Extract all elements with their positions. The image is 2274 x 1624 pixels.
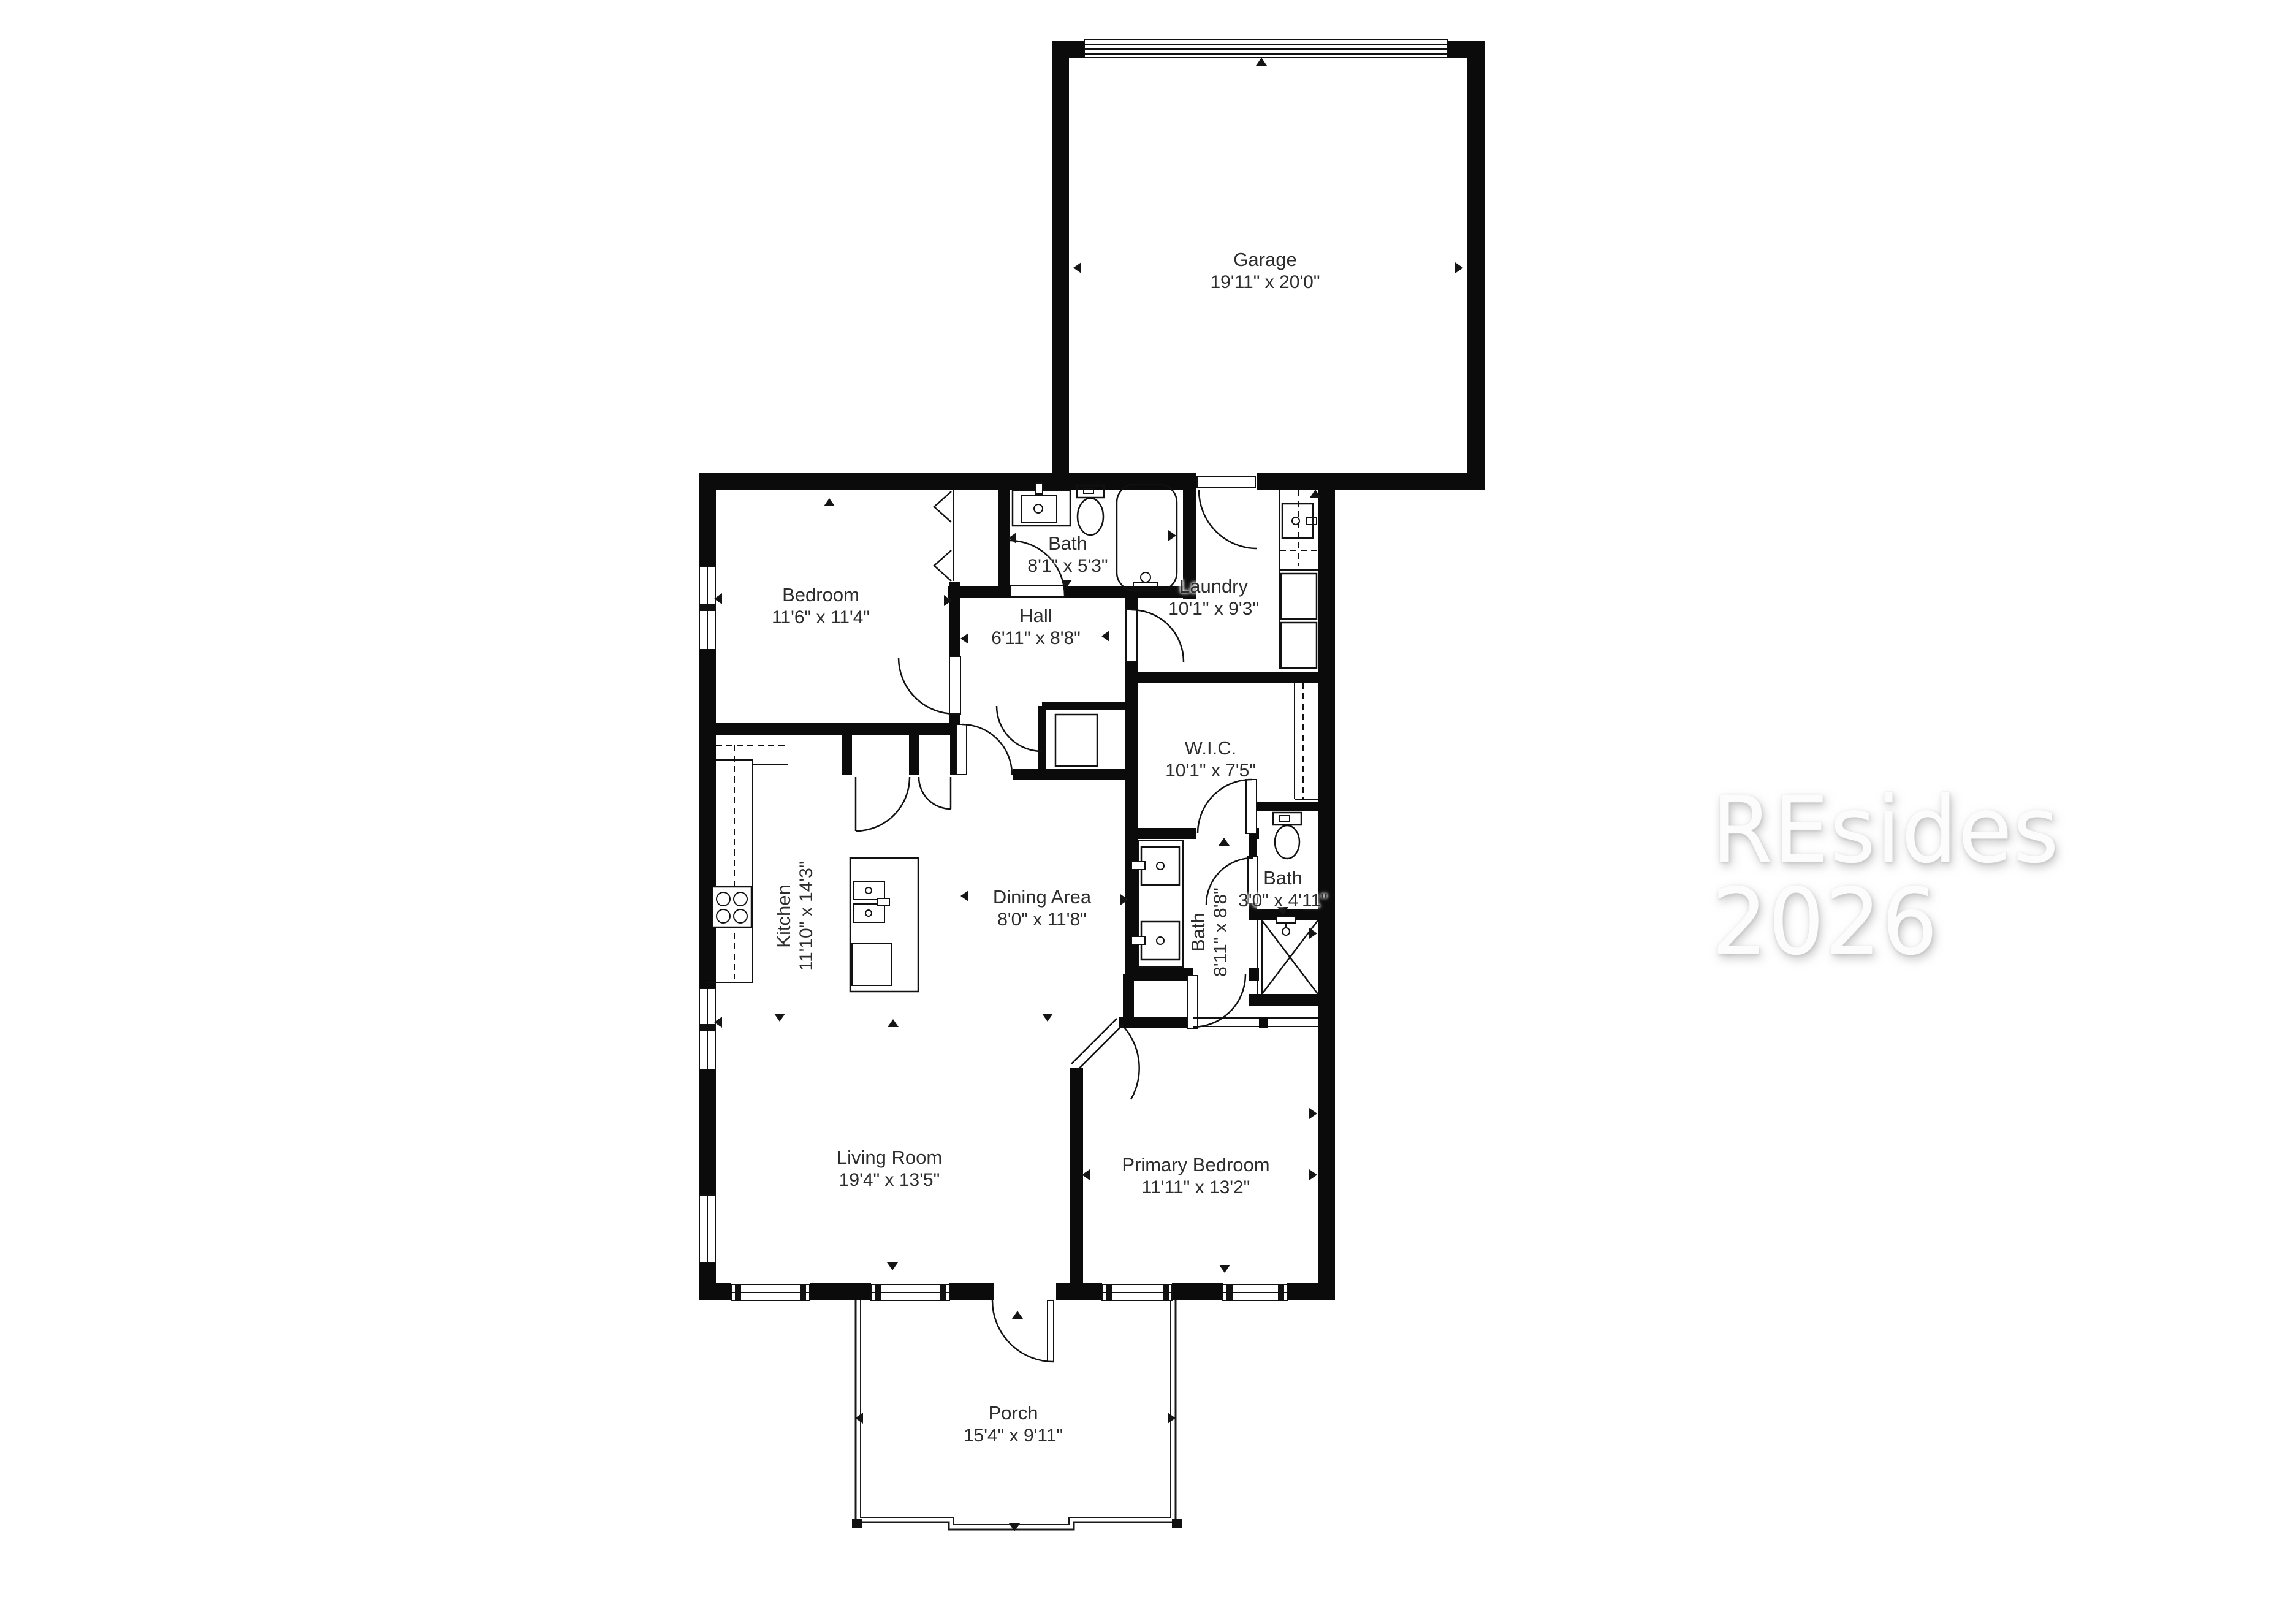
- door-pantry-a: [856, 777, 910, 831]
- direction-markers: [714, 58, 1463, 1531]
- room-label-bath-small: Bath 3'0" x 4'11": [1238, 868, 1328, 910]
- room-dims: 8'0" x 11'8": [997, 911, 1087, 929]
- wic-closet-rod: [1295, 683, 1318, 799]
- toilet-icon-small-bath: [1273, 813, 1301, 859]
- door-garage-laundry: [1197, 477, 1257, 548]
- room-label-living: Living Room 19'4" x 13'5": [837, 1148, 942, 1190]
- dishwasher-icon: [852, 944, 892, 985]
- room-label-porch: Porch 15'4" x 9'11": [964, 1403, 1063, 1445]
- window-bedroom-left: [699, 567, 715, 650]
- door-pantry-b: [919, 777, 951, 809]
- room-label-primary-bedroom: Primary Bedroom 11'11" x 13'2": [1122, 1155, 1269, 1197]
- door-hall-south: [956, 724, 1012, 775]
- bathtub-icon: [1117, 484, 1177, 591]
- shower-icon: [1258, 917, 1318, 994]
- double-vanity-icon: [1131, 841, 1183, 967]
- room-label-bath-primary: Bath 8'11" x 8'8": [1188, 887, 1230, 977]
- door-hall-closet: [997, 706, 1042, 751]
- room-name: Bath: [1048, 534, 1087, 553]
- room-name: Kitchen: [774, 884, 793, 947]
- room-name: Dining Area: [993, 887, 1091, 906]
- room-dims: 19'4" x 13'5": [839, 1171, 940, 1190]
- room-dims: 10'1" x 9'3": [1168, 600, 1259, 618]
- cooktop-icon: [712, 887, 751, 927]
- room-label-laundry: Laundry 10'1" x 9'3": [1168, 577, 1259, 618]
- room-label-hall: Hall 6'11" x 8'8": [991, 606, 1081, 648]
- room-dims: 15'4" x 9'11": [964, 1427, 1063, 1445]
- room-label-dining: Dining Area 8'0" x 11'8": [993, 887, 1091, 929]
- room-name: Hall: [1019, 606, 1052, 625]
- window-primary-bottom-1: [1102, 1284, 1172, 1300]
- door-porch: [992, 1284, 1056, 1362]
- room-label-bath-hall: Bath 8'1" x 5'3": [1027, 534, 1108, 575]
- room-dims: 11'11" x 13'2": [1142, 1178, 1250, 1197]
- door-bath-primary: [1187, 974, 1245, 1028]
- room-name: Living Room: [837, 1148, 942, 1167]
- island-sink-icon: [853, 881, 889, 922]
- toilet-icon: [1077, 485, 1104, 535]
- room-name: Primary Bedroom: [1122, 1155, 1269, 1174]
- water-heater-icon: [1055, 715, 1097, 766]
- dryer-icon: [1281, 623, 1317, 668]
- kitchen-island: [850, 858, 918, 992]
- window-primary-bottom-2: [1223, 1284, 1287, 1300]
- window-kitchen-left: [699, 988, 715, 1069]
- room-dims: 11'10" x 14'3": [797, 862, 816, 971]
- room-dims: 10'1" x 7'5": [1165, 762, 1256, 780]
- garage-door-icon: [1084, 39, 1448, 58]
- exterior-walls: [699, 50, 1485, 1300]
- room-label-wic: W.I.C. 10'1" x 7'5": [1165, 738, 1256, 780]
- room-dims: 19'11" x 20'0": [1211, 273, 1320, 292]
- room-name: Porch: [989, 1403, 1038, 1422]
- window-living-left: [699, 1195, 715, 1262]
- room-label-garage: Garage 19'11" x 20'0": [1211, 250, 1320, 292]
- room-name: Bath: [1263, 868, 1302, 887]
- room-name: W.I.C.: [1185, 738, 1236, 757]
- room-label-bedroom: Bedroom 11'6" x 11'4": [772, 585, 870, 627]
- laundry-fixtures: [1280, 490, 1318, 669]
- room-dims: 3'0" x 4'11": [1238, 892, 1328, 910]
- washer-icon: [1281, 574, 1317, 619]
- watermark: REsides 2026: [1711, 784, 2251, 968]
- room-dims: 8'1" x 5'3": [1027, 557, 1108, 575]
- floor-plan-page: Garage 19'11" x 20'0" Bedroom 11'6" x 11…: [0, 0, 2274, 1624]
- room-dims: 8'11" x 8'8": [1212, 887, 1230, 977]
- room-name: Bedroom: [782, 585, 859, 604]
- door-wic: [1198, 780, 1257, 833]
- room-name: Bath: [1188, 913, 1207, 952]
- room-label-kitchen: Kitchen 11'10" x 14'3": [774, 862, 816, 971]
- window-living-bottom-1: [731, 1284, 810, 1300]
- room-dims: 11'6" x 11'4": [772, 609, 870, 627]
- bifold-closet-icon: [934, 490, 954, 581]
- room-dims: 6'11" x 8'8": [991, 629, 1081, 648]
- room-name: Garage: [1233, 250, 1296, 269]
- door-bedroom: [899, 656, 960, 714]
- room-name: Laundry: [1179, 577, 1248, 596]
- window-living-bottom-2: [871, 1284, 949, 1300]
- opening-vestibule: [1193, 1018, 1318, 1026]
